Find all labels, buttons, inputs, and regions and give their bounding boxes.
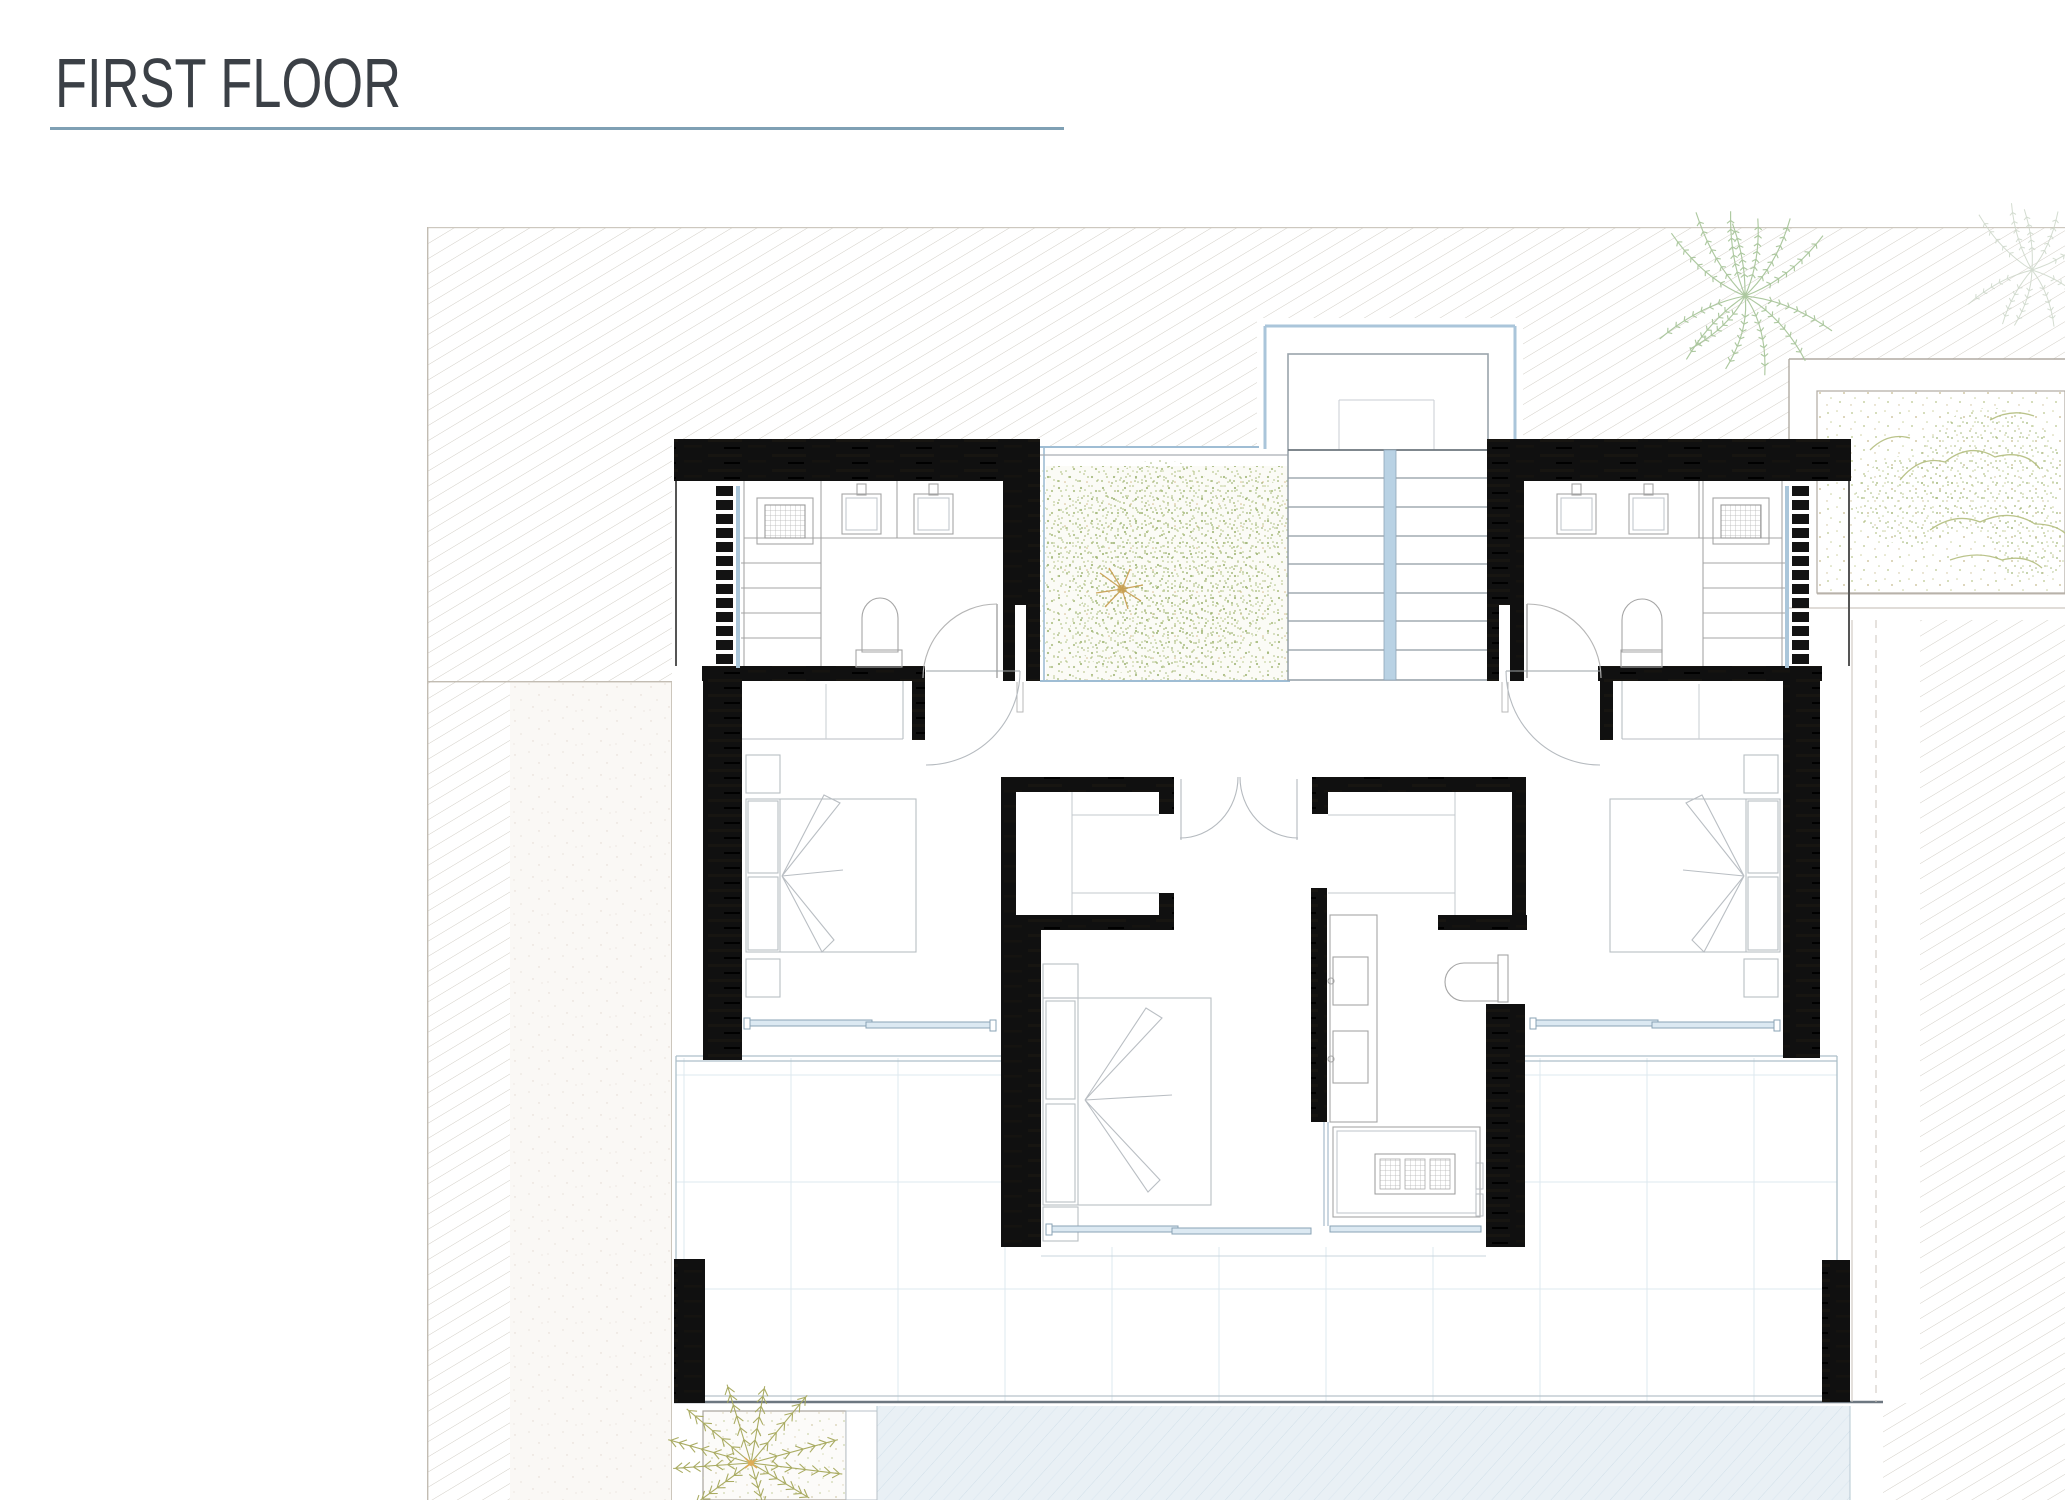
svg-text:FIRST FLOOR: FIRST FLOOR <box>55 44 401 122</box>
